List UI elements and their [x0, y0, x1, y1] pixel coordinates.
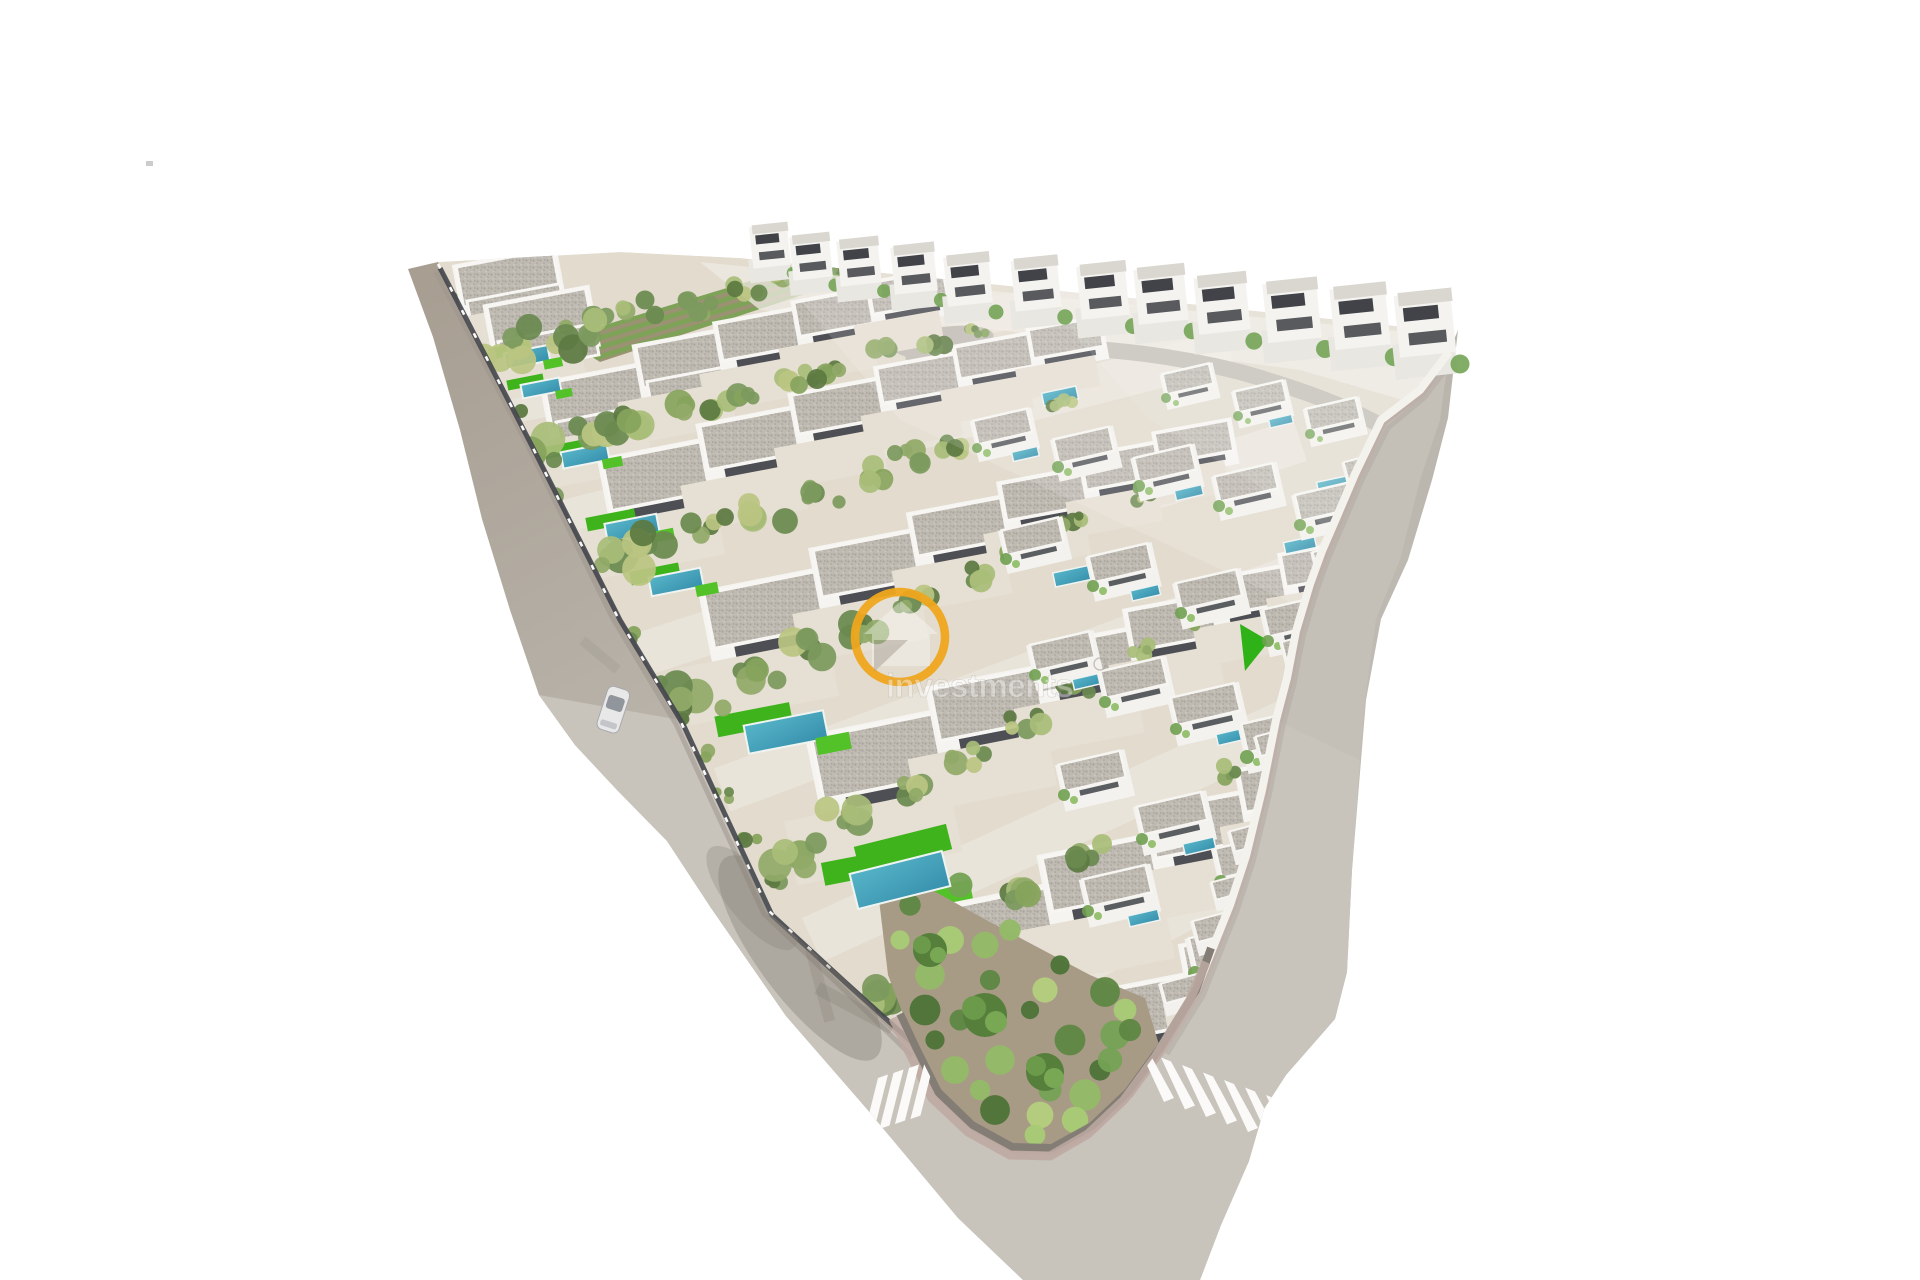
svg-text:investments: investments — [886, 667, 1073, 704]
